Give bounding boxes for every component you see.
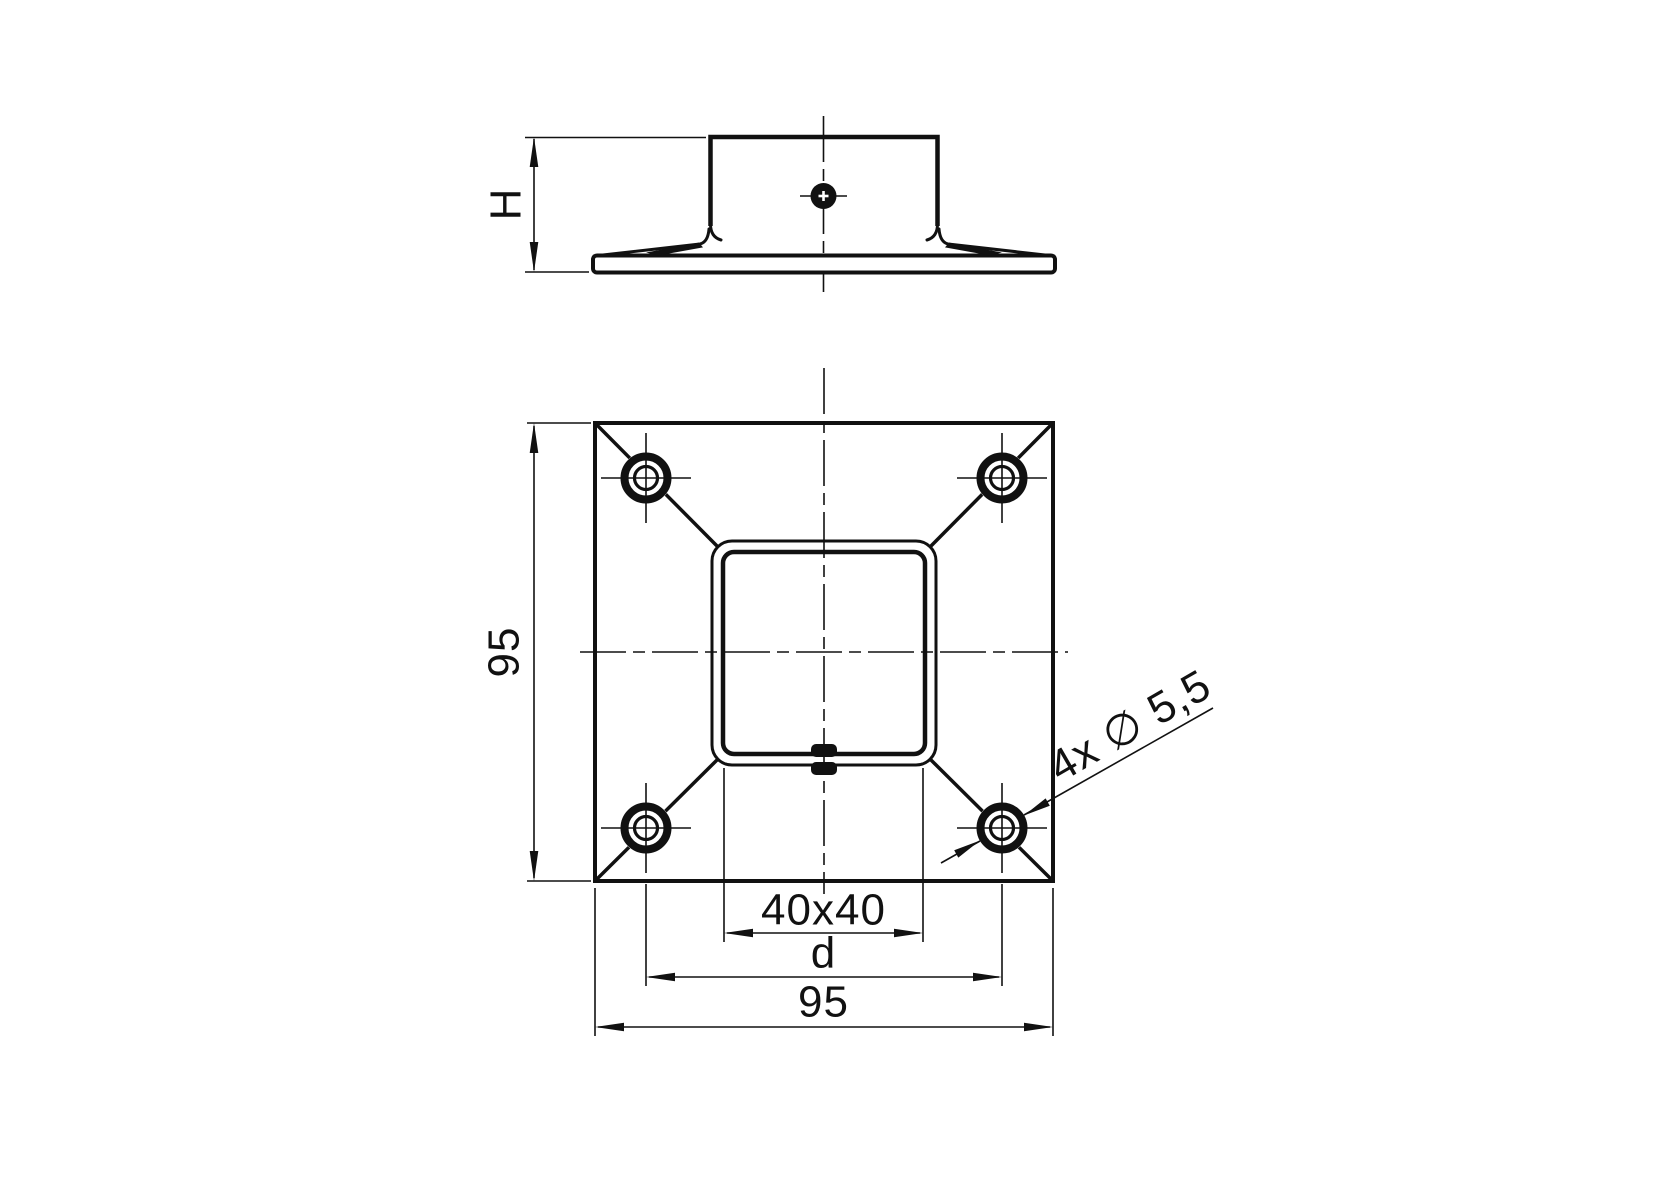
- weld-mark-lower: [811, 762, 837, 775]
- side-view: H: [482, 116, 1056, 292]
- drawing-canvas: H: [0, 0, 1680, 1188]
- side-skirt-left: [594, 229, 709, 256]
- arrowhead-down: [530, 242, 539, 272]
- dim-text-95-bottom: 95: [798, 978, 849, 1027]
- arrowhead-left: [724, 929, 753, 938]
- weld-mark-upper: [811, 744, 837, 757]
- dim-text-d: d: [811, 929, 836, 978]
- side-center-hole: [800, 183, 847, 209]
- arrowhead-left: [595, 1023, 624, 1032]
- side-skirt-right: [939, 229, 1054, 256]
- plan-view: 95 40x40 d 95: [480, 368, 1220, 1036]
- arrowhead-right: [973, 973, 1002, 982]
- technical-drawing: H: [0, 0, 1680, 1188]
- dim-plate-height-95: 95: [480, 423, 592, 881]
- dim-text-4x-dia-5-5: 4x ∅ 5,5: [1040, 660, 1219, 792]
- dim-text-95-left: 95: [480, 627, 529, 678]
- arrowhead-left: [646, 973, 675, 982]
- tube-40x40-outline: [723, 552, 925, 754]
- side-wall-curl-right: [927, 224, 938, 240]
- side-wall-curl-left: [711, 224, 722, 240]
- arrowhead-right: [1024, 1023, 1053, 1032]
- side-base-plate: [593, 256, 1055, 273]
- arrowhead-up: [530, 137, 539, 167]
- dim-text-H: H: [482, 188, 531, 221]
- arrowhead-down: [530, 851, 539, 881]
- arrowhead-right: [894, 929, 923, 938]
- arrowhead-up: [530, 423, 539, 453]
- dim-text-40x40: 40x40: [761, 886, 886, 935]
